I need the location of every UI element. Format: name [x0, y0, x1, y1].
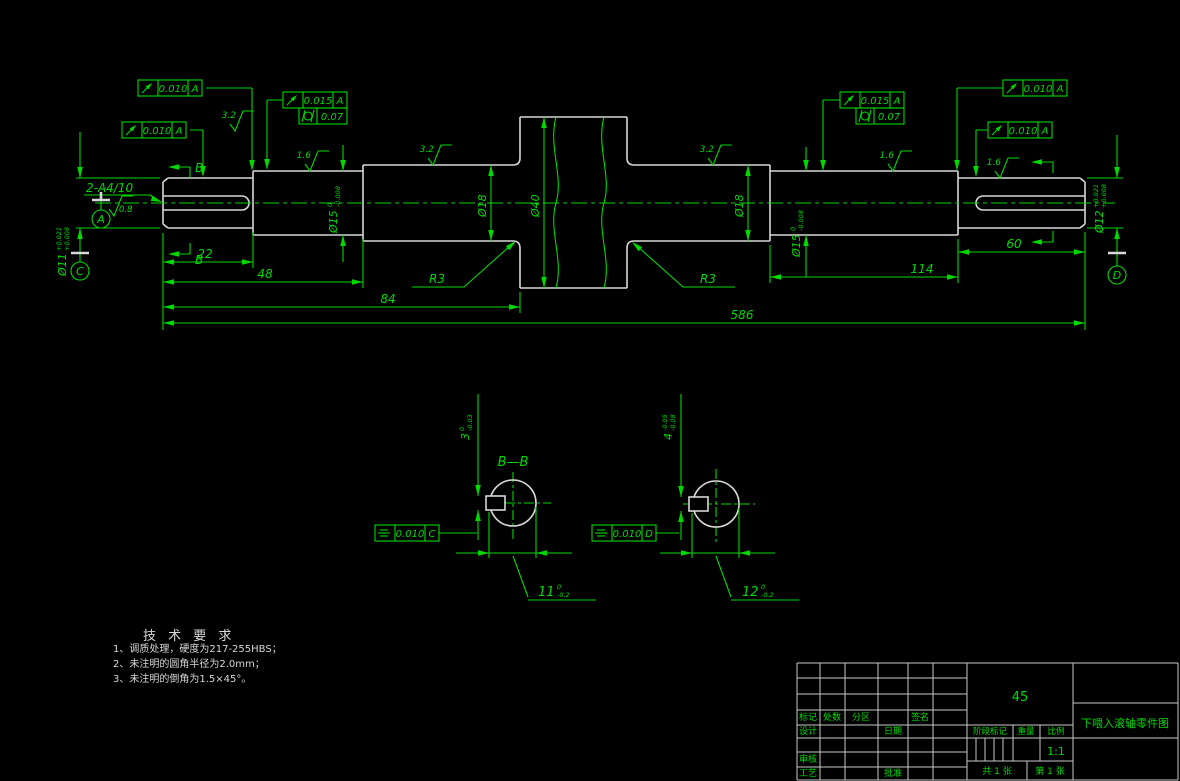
dim-dia11-left: Ø11 +0.021 +0.008 — [55, 227, 71, 277]
roughness-value: 1.6 — [880, 151, 895, 161]
tech-line-1: 1、调质处理，硬度为217-255HBS； — [113, 642, 282, 655]
datum-d: D — [1108, 266, 1126, 284]
dim-sup: 0 — [326, 203, 334, 207]
dimension-lines — [163, 252, 1085, 553]
dim-sub: -0.08 — [669, 414, 677, 431]
tb-weight-label: 重量 — [1017, 726, 1035, 737]
dim-sup: 0 — [557, 583, 561, 591]
fcf-datum: A — [191, 84, 199, 95]
fcf-value: 0.015 — [861, 96, 890, 107]
datum-c-label: C — [76, 265, 84, 278]
fillet-r3-left: R3 — [429, 272, 445, 286]
tb-sheet-no: 第 1 张 — [1035, 765, 1064, 777]
dim-main: Ø11 — [56, 253, 69, 277]
roughness-value: 3.2 — [222, 111, 237, 121]
dim-main: 12 — [742, 585, 759, 600]
keyway-note: 2-A4/10 — [86, 181, 133, 195]
fcf-value: 0.015 — [304, 96, 333, 107]
dim-key-depth-right: 12 0 -0.2 — [742, 583, 774, 600]
datum-c: C — [71, 262, 89, 280]
dim-dia18-left: Ø18 — [476, 194, 489, 218]
dim-sub: -0.2 — [557, 591, 570, 599]
fillet-r3-right: R3 — [700, 272, 716, 286]
tb-scale-value: 1:1 — [1047, 745, 1065, 758]
dim-sub: -0.2 — [761, 591, 774, 599]
dim-sub: +0.008 — [1100, 184, 1108, 208]
dim-key-width-right: 4 -0.05 -0.08 — [661, 414, 677, 440]
tb-sheets-total: 共 1 张 — [982, 766, 1011, 777]
roughness-value: 1.6 — [297, 151, 312, 161]
dim-sup: +0.021 — [1092, 184, 1100, 208]
fcf-value: 0.010 — [159, 84, 188, 95]
cut-label-b-bottom: B — [195, 253, 203, 267]
cad-viewport: 3.2 1.6 3.2 3.2 1.6 1.6 0.8 0.010 A 0.01… — [0, 0, 1180, 781]
dim-main: Ø15 — [790, 234, 803, 258]
tb-audit-label: 审核 — [799, 753, 817, 765]
fcf-value: 0.010 — [396, 529, 425, 540]
tb-approve-label: 批准 — [884, 767, 902, 779]
tb-part-title: 下喂入滚轴零件图 — [1081, 716, 1169, 730]
dim-sub: -0.008 — [797, 210, 805, 231]
dim-sub: +0.008 — [63, 227, 71, 251]
tb-material: 45 — [1012, 690, 1029, 705]
tech-line-2: 2、未注明的圆角半径为2.0mm； — [113, 657, 265, 670]
fcf-runout-7: 0.010 A — [1003, 80, 1067, 96]
dim-key-width-left: 3 0 -0.03 — [458, 414, 474, 440]
fcf-runout-1: 0.010 A — [138, 80, 202, 96]
dim-key-depth-left: 11 0 -0.2 — [538, 583, 570, 600]
fcf-value: 0.010 — [143, 126, 172, 137]
dim-sup: +0.021 — [55, 227, 63, 251]
dim-main: Ø18 — [476, 194, 489, 218]
datum-a: A — [92, 210, 110, 228]
fcf-symmetry-9: 0.010 C — [375, 525, 439, 541]
dim-main: Ø18 — [733, 194, 746, 218]
tb-date-label: 日期 — [884, 726, 902, 737]
dim-main: Ø40 — [529, 194, 542, 218]
tb-mark-label: 标记 — [799, 711, 817, 723]
fcf-value: 0.010 — [613, 529, 642, 540]
fcf-cylindricity-4: 0.07 — [299, 108, 347, 124]
tb-count-label: 处数 — [823, 711, 841, 723]
fcf-symmetry-10: 0.010 D — [592, 525, 656, 541]
extension-lines — [76, 117, 1123, 558]
dim-dia18-right: Ø18 — [733, 194, 746, 218]
fcf-value: 0.010 — [1024, 84, 1053, 95]
fcf-datum: D — [645, 529, 653, 540]
tech-title: 技 术 要 求 — [143, 629, 235, 644]
dim-dia15-left: Ø15 0 -0.008 — [326, 186, 342, 234]
dimension-arrows — [77, 117, 1120, 556]
dim-84: 84 — [380, 292, 395, 306]
fcf-runout-2: 0.010 A — [122, 122, 186, 138]
tb-stage-label: 阶段标记 — [973, 726, 1008, 737]
fcf-datum: A — [336, 96, 344, 107]
dim-586: 586 — [731, 308, 754, 322]
dim-sub: -0.03 — [466, 414, 474, 431]
datum-a-label: A — [96, 213, 105, 226]
dim-48: 48 — [257, 267, 273, 281]
dim-114: 114 — [911, 262, 934, 276]
keyway-notch-right — [689, 497, 708, 511]
tech-requirements: 技 术 要 求 1、调质处理，硬度为217-255HBS； 2、未注明的圆角半径… — [113, 629, 282, 685]
fcf-runout-3: 0.015 A — [283, 92, 347, 108]
tb-design-label: 设计 — [799, 725, 817, 737]
tb-sign-label: 签名 — [911, 711, 929, 723]
fcf-datum: A — [1041, 126, 1049, 137]
dim-main: 3 — [459, 433, 472, 440]
roughness-icons — [109, 111, 1019, 216]
dim-main: Ø15 — [327, 210, 340, 234]
cut-label-b-top: B — [195, 161, 203, 175]
fcf-datum: A — [893, 96, 901, 107]
roughness-value: 3.2 — [700, 145, 715, 155]
dim-sup: 0 — [789, 227, 797, 231]
section-title-bb: B—B — [498, 455, 529, 470]
roughness-value: 3.2 — [420, 145, 435, 155]
fcf-runout-5: 0.015 A — [840, 92, 904, 108]
tech-line-3: 3、未注明的倒角为1.5×45°。 — [113, 672, 251, 685]
datum-d-label: D — [1113, 269, 1121, 282]
dim-main: 11 — [538, 585, 555, 600]
dim-dia12-right: Ø12 +0.021 +0.008 — [1092, 184, 1108, 234]
dim-sub: -0.008 — [334, 186, 342, 207]
roughness-value: 1.6 — [987, 158, 1002, 168]
dim-dia15-right: Ø15 0 -0.008 — [789, 210, 805, 258]
fcf-value: 0.010 — [1009, 126, 1038, 137]
shaft-part-drawing: 3.2 1.6 3.2 3.2 1.6 1.6 0.8 0.010 A 0.01… — [0, 0, 1180, 781]
section-view-right — [689, 481, 739, 527]
dim-sup: 0 — [458, 427, 466, 431]
fcf-datum: C — [429, 529, 436, 540]
title-block: 标记 处数 分区 签名 设计 日期 审核 工艺 批准 阶段标记 重量 比例 1:… — [797, 663, 1178, 780]
datum-bars — [71, 192, 1126, 253]
dim-sup: -0.05 — [661, 414, 669, 431]
fcf-cylindricity-6: 0.07 — [856, 108, 904, 124]
dim-main: Ø12 — [1093, 210, 1106, 234]
fcf-value: 0.07 — [878, 112, 901, 123]
tb-zone-label: 分区 — [852, 712, 870, 723]
dim-sup: 0 — [761, 583, 765, 591]
leader-lines — [80, 88, 1117, 600]
tb-scale-label: 比例 — [1047, 726, 1064, 737]
fcf-value: 0.07 — [321, 112, 344, 123]
keyway-notch-left — [486, 496, 505, 510]
dim-60: 60 — [1006, 237, 1022, 251]
dim-dia40: Ø40 — [529, 194, 542, 218]
fcf-datum: A — [1056, 84, 1064, 95]
roughness-value: 0.8 — [119, 205, 133, 215]
dim-main: 4 — [662, 433, 675, 440]
fcf-runout-8: 0.010 A — [988, 122, 1052, 138]
fcf-datum: A — [175, 126, 183, 137]
tb-process-label: 工艺 — [799, 768, 817, 779]
